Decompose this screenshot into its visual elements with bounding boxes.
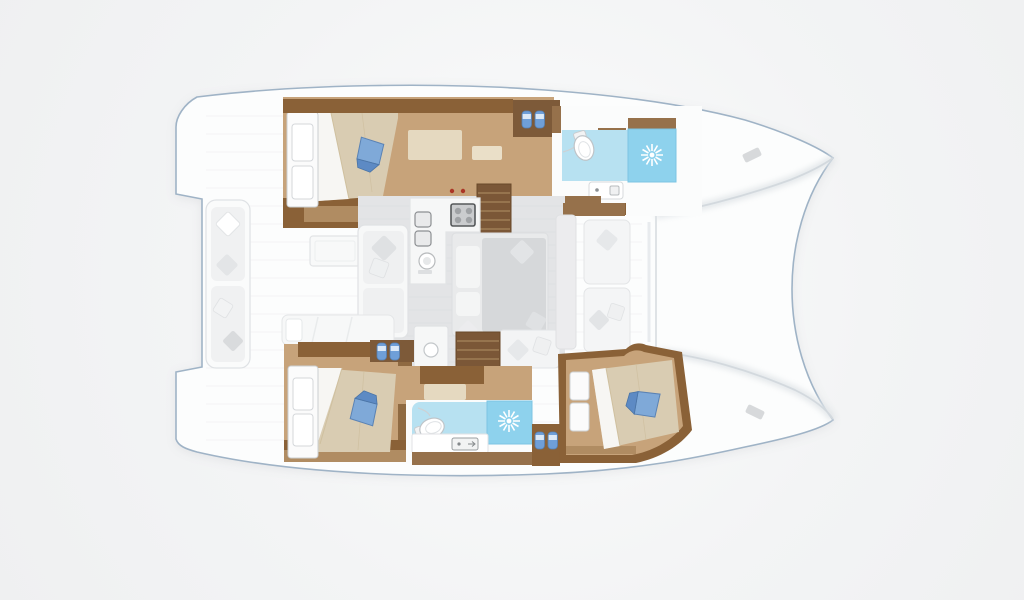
port-forward-bathroom	[552, 106, 702, 216]
aft-seat	[498, 330, 560, 368]
stove-icon	[451, 204, 475, 226]
galley-appliance	[415, 212, 431, 227]
floorplan-graphic	[0, 0, 1024, 600]
starboard-aft-cabin	[282, 315, 414, 462]
bathroom-floor	[562, 130, 628, 181]
aft-companionway-area	[398, 366, 532, 404]
galley-appliance	[415, 231, 431, 246]
seat-berth	[584, 220, 630, 284]
rug	[424, 384, 466, 400]
closet	[556, 215, 576, 349]
cabinet-band	[283, 99, 513, 113]
aft-cockpit	[206, 200, 250, 368]
small-mat	[472, 146, 502, 160]
floorplan-canvas	[0, 0, 1024, 600]
rug	[408, 130, 462, 160]
sink-icon	[610, 186, 619, 195]
sink-icon	[452, 438, 478, 450]
faucet	[457, 442, 460, 445]
headboard	[570, 403, 589, 431]
stove-knob	[450, 189, 454, 193]
deck-hatch	[310, 236, 360, 266]
headboard	[570, 372, 589, 400]
stove-knob	[461, 189, 465, 193]
faucet	[595, 188, 599, 192]
starboard-forward-cabin	[558, 343, 692, 463]
aft-cabinet	[414, 326, 448, 368]
starboard-hull-corridor	[556, 203, 630, 352]
